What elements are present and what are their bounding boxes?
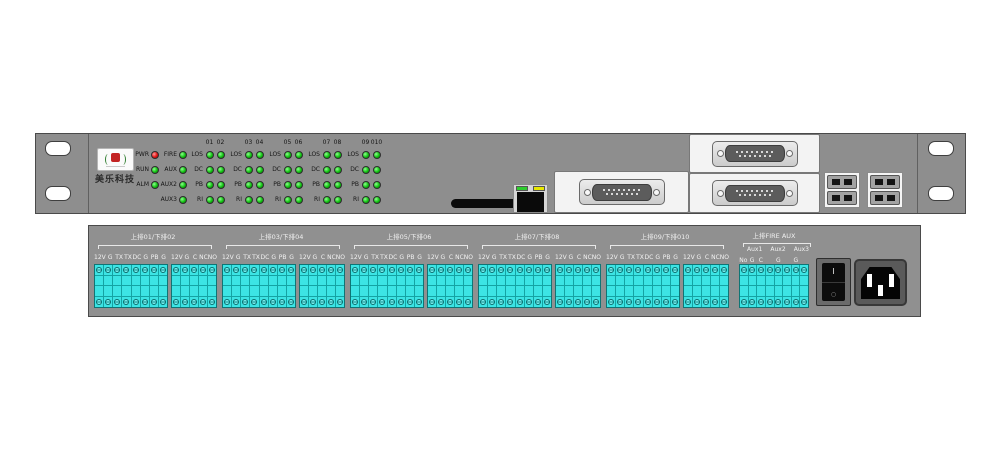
terminal-column	[757, 265, 766, 307]
laurel-right-icon	[120, 154, 126, 165]
terminal-cell	[488, 297, 496, 308]
terminal-column	[327, 265, 336, 307]
terminal-screw	[151, 267, 157, 273]
terminal-cell	[644, 297, 652, 308]
channel-led	[362, 181, 370, 189]
terminal-screw	[535, 299, 541, 305]
terminal-screw	[251, 267, 257, 273]
terminal-screw	[526, 299, 532, 305]
terminal-cell	[583, 265, 591, 276]
terminal-screw	[233, 267, 239, 273]
led-panel: PWRRUNALMFIREAUXAUX2AUX30102LOSDCPBRI030…	[136, 138, 382, 207]
terminal-cell	[141, 286, 149, 297]
terminal-label: NC	[199, 254, 208, 261]
terminal-screw	[200, 267, 206, 273]
terminal-column	[800, 265, 808, 307]
terminal-column	[534, 265, 543, 307]
led-row-label: PB	[312, 181, 321, 188]
terminal-cell	[318, 286, 326, 297]
terminal-cell	[208, 276, 216, 287]
fiber-slot	[875, 195, 883, 201]
terminal-cell	[693, 297, 701, 308]
db15-pin	[631, 193, 633, 195]
terminal-screw	[575, 267, 581, 273]
terminal-cell	[766, 265, 774, 276]
terminal-screw	[209, 299, 215, 305]
terminal-cell	[406, 276, 414, 287]
terminal-cell	[309, 265, 317, 276]
terminal-screw	[712, 267, 718, 273]
terminal-cell	[241, 297, 249, 308]
db15-pin	[766, 151, 768, 153]
db15-pin	[771, 190, 773, 192]
terminal-screw	[672, 299, 678, 305]
terminal-cell	[437, 276, 445, 287]
terminal-cell	[159, 276, 167, 287]
terminal-cell	[287, 297, 295, 308]
terminal-screw	[721, 299, 727, 305]
terminal-cell	[181, 265, 189, 276]
terminal-cell	[159, 286, 167, 297]
terminal-cell	[446, 265, 454, 276]
db15-pin	[611, 193, 613, 195]
terminal-screw	[114, 267, 120, 273]
terminal-screw	[507, 267, 513, 273]
terminal-column	[711, 265, 720, 307]
terminal-cell	[122, 276, 130, 287]
rack-mount-hole	[45, 141, 71, 156]
terminal-column	[574, 265, 583, 307]
terminal-screw	[319, 299, 325, 305]
terminal-cell	[497, 276, 505, 287]
aux-led	[179, 166, 187, 174]
duplex-fiber-connector	[870, 191, 900, 205]
terminal-cell	[625, 276, 633, 287]
terminal-screw	[694, 299, 700, 305]
section-title: 上排07/下排08	[470, 231, 604, 241]
db15-pin	[633, 189, 635, 191]
terminal-cell	[684, 265, 692, 276]
terminal-screw	[429, 267, 435, 273]
terminal-column	[122, 265, 131, 307]
led-row-label: LOS	[230, 151, 243, 158]
terminal-label: 12V	[171, 254, 183, 261]
terminal-cell	[287, 276, 295, 287]
iec-pin-live	[867, 274, 872, 287]
terminal-cell	[634, 297, 642, 308]
terminal-column	[543, 265, 551, 307]
terminal-screw	[352, 267, 358, 273]
channel-led	[217, 151, 225, 159]
terminal-label: G	[441, 254, 446, 261]
terminal-screw	[173, 267, 179, 273]
terminal-cell	[428, 265, 436, 276]
terminal-column	[95, 265, 104, 307]
db15-module-upper-right	[689, 134, 820, 173]
terminal-column	[360, 265, 369, 307]
terminal-screw	[242, 299, 248, 305]
terminal-screw	[224, 299, 230, 305]
terminal-cell	[208, 265, 216, 276]
terminal-labels: 12VGTXTXDCGPBG	[222, 252, 296, 262]
terminal-label: 12V	[555, 254, 567, 261]
terminal-screw	[584, 299, 590, 305]
terminal-column	[318, 265, 327, 307]
terminal-cell	[534, 265, 542, 276]
terminal-cell	[428, 276, 436, 287]
terminal-cell	[223, 276, 231, 287]
terminal-cell	[516, 297, 524, 308]
terminal-screw	[517, 267, 523, 273]
terminal-column	[309, 265, 318, 307]
terminal-label: PB	[535, 254, 543, 261]
terminal-cell	[607, 265, 615, 276]
section-title: 上排01/下排02	[86, 231, 220, 241]
channel-number: 05	[284, 139, 292, 146]
terminal-cell	[702, 286, 710, 297]
terminal-cell	[369, 276, 377, 287]
fiber-slot	[887, 195, 895, 201]
fiber-slot	[844, 179, 852, 185]
terminal-labels: 12VGCNCNO	[555, 252, 601, 262]
terminal-column	[415, 265, 423, 307]
terminal-cell	[775, 286, 783, 297]
terminal-cell	[783, 297, 791, 308]
terminal-label: G	[143, 254, 148, 261]
terminal-screw	[557, 299, 563, 305]
terminal-cell	[104, 286, 112, 297]
terminal-cell	[634, 276, 642, 287]
terminal-cell	[132, 265, 140, 276]
led-label: AUX	[164, 166, 177, 173]
terminal-cell	[150, 265, 158, 276]
terminal-cell	[327, 286, 335, 297]
terminal-cell	[592, 265, 600, 276]
terminal-cell	[378, 297, 386, 308]
terminal-cell	[711, 297, 719, 308]
terminal-label: NC	[455, 254, 464, 261]
terminal-column	[278, 265, 287, 307]
channel-number: 01	[206, 139, 214, 146]
terminal-screw	[270, 267, 276, 273]
terminal-cell	[662, 276, 670, 287]
db15-pin	[749, 194, 751, 196]
fiber-port-panel	[824, 172, 860, 208]
terminal-screw	[703, 299, 709, 305]
terminal-screw	[635, 267, 641, 273]
terminal-cell	[702, 276, 710, 287]
spacer	[162, 138, 187, 147]
terminal-cell	[278, 276, 286, 287]
terminal-cell	[479, 297, 487, 308]
fiber-slot	[875, 179, 883, 185]
terminal-cell	[269, 276, 277, 287]
db15-pin	[638, 189, 640, 191]
fiber-slot	[832, 195, 840, 201]
db15-module-lower-right	[689, 173, 820, 213]
terminal-column	[497, 265, 506, 307]
led-label: AUX2	[161, 181, 177, 188]
terminal-cell	[388, 265, 396, 276]
terminal-cell	[625, 297, 633, 308]
db15-pin	[771, 151, 773, 153]
terminal-screw	[480, 299, 486, 305]
terminal-cell	[534, 286, 542, 297]
channel-led	[245, 181, 253, 189]
led-row-label: DC	[272, 166, 282, 173]
terminal-label: C	[759, 257, 763, 264]
channel-led	[284, 166, 292, 174]
terminal-cell	[711, 276, 719, 287]
terminal-screw	[407, 299, 413, 305]
power-switch[interactable]: I ○	[816, 258, 851, 306]
terminal-screw	[142, 267, 148, 273]
terminal-cell	[141, 265, 149, 276]
terminal-label: NO	[464, 254, 473, 261]
terminal-cell	[388, 276, 396, 287]
terminal-screw	[566, 299, 572, 305]
channel-led	[373, 166, 381, 174]
terminal-column	[653, 265, 662, 307]
terminal-cell	[565, 276, 573, 287]
db15-pin	[621, 193, 623, 195]
terminal-label: G	[673, 254, 678, 261]
terminal-cell	[113, 297, 121, 308]
terminal-screw	[654, 299, 660, 305]
terminal-cell	[190, 276, 198, 287]
terminal-label: TX	[636, 254, 644, 261]
terminal-cell	[113, 286, 121, 297]
terminal-cell	[406, 297, 414, 308]
terminal-column	[720, 265, 728, 307]
terminal-cell	[516, 276, 524, 287]
led-row-label: PB	[195, 181, 204, 188]
db15-pin	[756, 190, 758, 192]
led-row-label: LOS	[347, 151, 360, 158]
connector-screw	[717, 190, 724, 197]
db15-pin-row	[736, 190, 773, 192]
terminal-label: G	[185, 254, 190, 261]
terminal-cell	[711, 286, 719, 297]
section-bracket	[354, 245, 468, 249]
db15-pin	[739, 155, 741, 157]
terminal-column	[260, 265, 269, 307]
terminal-cell	[455, 297, 463, 308]
terminal-cell	[516, 265, 524, 276]
terminal-label: G	[364, 254, 369, 261]
ethernet-link-led	[516, 186, 528, 191]
terminal-cell	[464, 286, 472, 297]
terminal-label: G	[794, 257, 799, 264]
terminal-label: G	[313, 254, 318, 261]
terminal-column	[625, 265, 634, 307]
terminal-labels: 12VGTXTXDCGPBG	[606, 252, 680, 262]
db15-pin	[636, 193, 638, 195]
terminal-labels: 12VGCNCNO	[683, 252, 729, 262]
terminal-labels: 12VGCNCNO	[427, 252, 473, 262]
terminal-cell	[369, 286, 377, 297]
terminal-cell	[783, 286, 791, 297]
terminal-cell	[543, 276, 551, 287]
terminal-cell	[749, 297, 757, 308]
terminal-label: No	[739, 257, 747, 264]
section-bracket	[610, 245, 724, 249]
aux-led-row: FIRE	[162, 147, 187, 162]
terminal-label: 12V	[606, 254, 618, 261]
terminal-label: 12V	[299, 254, 311, 261]
terminal-screw	[438, 267, 444, 273]
terminal-label: DC	[388, 254, 397, 261]
db15-pin-row	[606, 193, 638, 195]
terminal-cell	[574, 265, 582, 276]
db15-pin	[616, 193, 618, 195]
db15-connector	[712, 141, 798, 167]
terminal-label: 12V	[478, 254, 490, 261]
iec-pin-neutral	[889, 274, 894, 287]
terminal-screw	[645, 267, 651, 273]
terminal-column	[455, 265, 464, 307]
terminal-screw	[635, 299, 641, 305]
db15-pin	[746, 151, 748, 153]
channel-led	[373, 181, 381, 189]
terminal-labels: 12VGTXTXDCGPBG	[478, 252, 552, 262]
terminal-cell	[516, 286, 524, 297]
db15-connector	[579, 179, 665, 205]
terminal-column	[662, 265, 671, 307]
terminal-label: TX	[124, 254, 132, 261]
led-row-label: RI	[236, 196, 243, 203]
terminal-cell	[543, 297, 551, 308]
led-label: FIRE	[164, 151, 177, 158]
channel-led	[284, 151, 292, 159]
ethernet-port	[513, 184, 548, 213]
terminal-cell	[437, 297, 445, 308]
channel-led	[295, 166, 303, 174]
channel-number: 06	[295, 139, 303, 146]
terminal-cell	[378, 276, 386, 287]
terminal-label: 12V	[683, 254, 695, 261]
terminal-cell	[199, 286, 207, 297]
channel-led	[256, 196, 264, 204]
terminal-cell	[792, 276, 800, 287]
terminal-column	[208, 265, 216, 307]
led-row-label: LOS	[269, 151, 282, 158]
terminal-cell	[181, 297, 189, 308]
terminal-cell	[428, 297, 436, 308]
terminal-cell	[351, 297, 359, 308]
terminal-column	[287, 265, 295, 307]
rear-panel: I ○ 上排01/下排0212VGTXTXDCGPBG12VGCNCNO上排03…	[88, 225, 921, 317]
terminal-cell	[287, 286, 295, 297]
terminal-column	[132, 265, 141, 307]
aux-led-row: AUX3	[162, 192, 187, 207]
terminal-column	[634, 265, 643, 307]
terminal-cell	[792, 297, 800, 308]
terminal-cell	[607, 286, 615, 297]
terminal-cell	[616, 286, 624, 297]
terminal-block	[739, 264, 809, 308]
terminal-cell	[260, 286, 268, 297]
terminal-screw	[517, 299, 523, 305]
terminal-column	[616, 265, 625, 307]
rack-mount-hole	[928, 141, 954, 156]
terminal-label: G	[108, 254, 113, 261]
terminal-screw	[224, 267, 230, 273]
terminal-cell	[446, 297, 454, 308]
terminal-screw	[584, 267, 590, 273]
terminal-screw	[133, 299, 139, 305]
terminal-screw	[182, 299, 188, 305]
terminal-label: DC	[260, 254, 269, 261]
terminal-cell	[720, 265, 728, 276]
channel-led	[334, 151, 342, 159]
terminal-screw	[767, 267, 773, 273]
channel-led-group: 0708LOSDCPBRI	[307, 138, 343, 207]
terminal-screw	[685, 299, 691, 305]
terminal-screw	[712, 299, 718, 305]
terminal-cell	[141, 297, 149, 308]
terminal-cell	[351, 286, 359, 297]
terminal-label: TX	[371, 254, 379, 261]
terminal-label: C	[449, 254, 453, 261]
ethernet-jack-opening	[517, 192, 544, 212]
terminal-cell	[693, 276, 701, 287]
db15-pin	[759, 155, 761, 157]
terminal-label: C	[193, 254, 197, 261]
terminal-screw	[191, 299, 197, 305]
terminal-cell	[269, 286, 277, 297]
terminal-cell	[172, 286, 180, 297]
terminal-screw	[301, 267, 307, 273]
channel-led	[323, 151, 331, 159]
terminal-column	[250, 265, 259, 307]
db15-pin	[759, 194, 761, 196]
terminal-column	[241, 265, 250, 307]
terminal-screw	[270, 299, 276, 305]
terminal-cell	[792, 286, 800, 297]
channel-led-group: 0102LOSDCPBRI	[190, 138, 226, 207]
terminal-screw	[389, 267, 395, 273]
db15-pin	[751, 151, 753, 153]
terminal-cell	[800, 265, 808, 276]
power-switch-rocker[interactable]: I ○	[822, 263, 845, 301]
terminal-screw	[370, 267, 376, 273]
db15-shell	[725, 145, 785, 162]
terminal-block	[222, 264, 296, 308]
led-label: AUX3	[161, 196, 177, 203]
terminal-screw	[96, 267, 102, 273]
terminal-cell	[208, 297, 216, 308]
terminal-cell	[172, 297, 180, 308]
db15-pin-row	[736, 151, 773, 153]
terminal-cell	[479, 276, 487, 287]
terminal-screw	[784, 299, 790, 305]
channel-led	[217, 181, 225, 189]
terminal-cell	[318, 265, 326, 276]
db15-pin	[626, 193, 628, 195]
terminal-cell	[574, 276, 582, 287]
terminal-cell	[506, 265, 514, 276]
terminal-screw	[593, 299, 599, 305]
terminal-cell	[388, 297, 396, 308]
terminal-cell	[360, 276, 368, 287]
channel-led	[217, 166, 225, 174]
led-label: RUN	[136, 166, 149, 173]
terminal-cell	[644, 265, 652, 276]
terminal-screw	[557, 267, 563, 273]
terminal-label: 12V	[427, 254, 439, 261]
channel-led	[373, 196, 381, 204]
